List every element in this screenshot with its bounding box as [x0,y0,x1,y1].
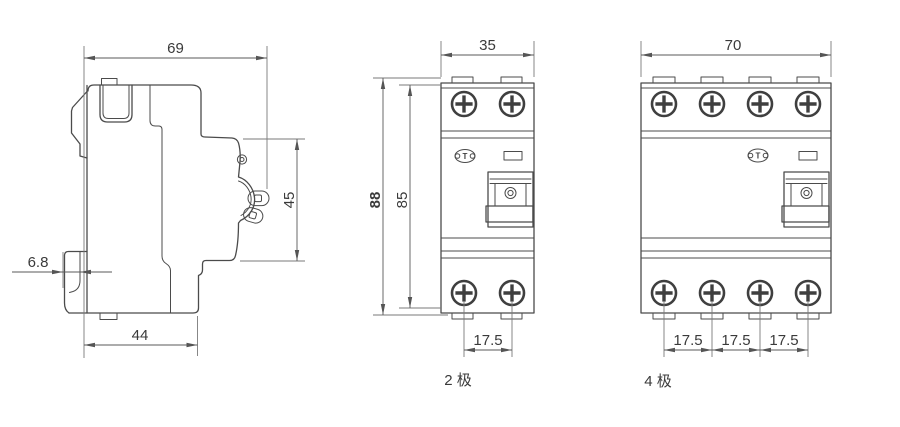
dim-clip-depth: 6.8 [12,252,112,288]
brand-logo: T [455,150,475,163]
handle-symbol-icon [804,190,809,195]
rear-flange [72,92,88,159]
dim-label: 35 [479,37,496,54]
screw-terminal-icon [796,92,820,116]
toggle-lever [486,206,533,222]
indicator-window [504,152,522,161]
handle-symbol-icon [508,190,513,195]
dim-label: 17.5 [473,332,502,349]
dim-base-width: 44 [84,316,198,356]
side-profile [65,79,270,320]
technical-drawing: 69 45 6.8 44 [0,0,900,427]
side-view: 69 45 6.8 44 [12,40,305,358]
screw-terminal-icon [748,92,772,116]
screw-terminal-icon [652,92,676,116]
dim-label: 88 [367,192,384,209]
two-pole-device: T [441,77,534,319]
screw-terminal-icon [700,92,724,116]
dim-label: 6.8 [28,254,49,271]
dim-label: 17.5 [769,332,798,349]
handle-symbol-icon [505,188,516,199]
dim-pole-pitch-1: 17.5 [664,301,712,357]
switch-handle [486,172,533,227]
mounting-tab [501,77,522,83]
drawing-canvas: 69 45 6.8 44 [0,0,900,427]
screw-terminal-icon [500,92,524,116]
mounting-tab [797,77,819,83]
dim-label: 44 [132,327,149,344]
four-pole-device: T [641,77,831,319]
dim-width: 70 [641,37,831,77]
indicator-window [799,152,817,161]
mounting-tab [452,313,473,319]
two-pole-view: T 35 88 [367,37,534,389]
dim-terminal-height: 45 [240,139,305,261]
view-caption: 2 极 [444,372,472,389]
body-outline [641,83,831,313]
internal-divider [150,85,171,313]
dim-label: 17.5 [673,332,702,349]
dim-pole-pitch: 17.5 [464,301,512,357]
toggle-lever [782,206,829,222]
terminal-screw-icon [237,155,246,164]
mounting-tab [452,77,473,83]
svg-text:T: T [463,152,468,161]
four-pole-view: T 70 17.5 [641,37,831,390]
handle-symbol-icon [801,188,812,199]
dim-label: 17.5 [721,332,750,349]
dim-label: 70 [725,37,742,54]
dim-width: 35 [441,37,534,77]
mounting-tab [701,77,723,83]
switch-handle [782,172,829,227]
mounting-tab [653,77,675,83]
svg-text:T: T [756,152,761,161]
top-slider-tab [100,85,132,122]
top-slider-tab-inner [103,85,129,119]
mounting-tab [501,313,522,319]
dim-body-height: 85 [394,85,441,308]
brand-logo: T [748,149,768,162]
dim-pole-pitch-3: 17.5 [760,301,808,357]
top-slider-notch [102,79,118,86]
mounting-tab [749,77,771,83]
dim-label: 69 [167,40,184,57]
dim-label: 85 [394,192,411,209]
bottom-tab [100,313,117,320]
view-caption: 4 极 [644,373,672,390]
screw-terminal-icon [452,92,476,116]
dim-label: 45 [281,192,298,209]
dim-overall-width: 69 [84,40,267,358]
dim-pole-pitch-2: 17.5 [712,301,760,357]
